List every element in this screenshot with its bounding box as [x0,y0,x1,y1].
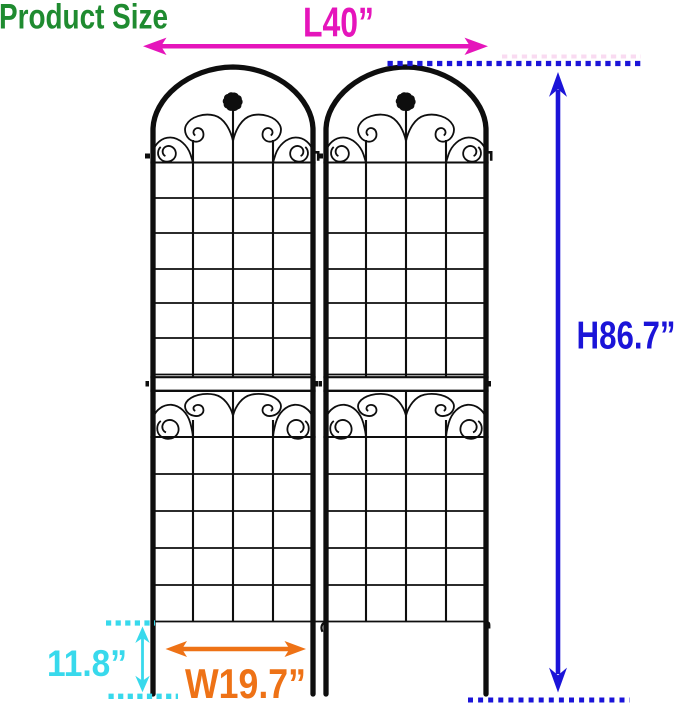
svg-text:H86.7”: H86.7” [577,315,676,358]
svg-text:L40”: L40” [303,0,374,45]
svg-text:11.8”: 11.8” [47,643,127,684]
svg-text:W19.7”: W19.7” [185,660,306,705]
svg-text:Product Size: Product Size [0,0,168,37]
